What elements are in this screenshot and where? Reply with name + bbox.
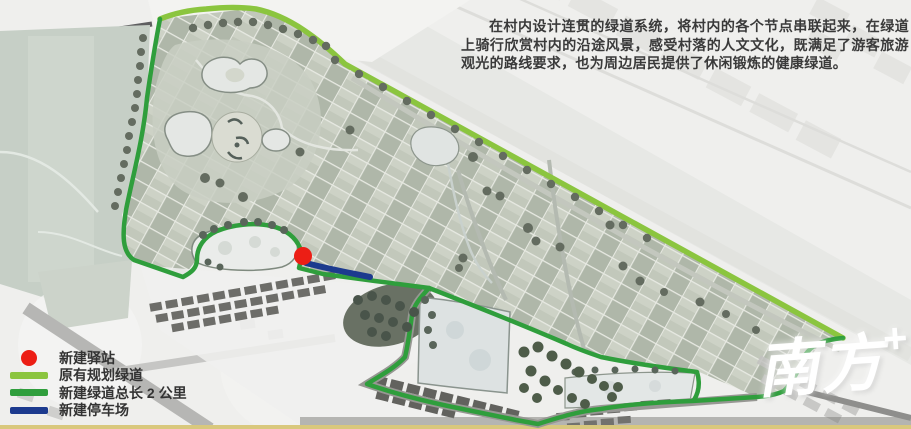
green-line-icon — [10, 389, 48, 396]
greenway-plan-figure: 在村内设计连贯的绿道系统，将村内的各个节点串联起来，在绿道上骑行欣赏村内的沿途风… — [0, 0, 911, 429]
park-pond-east — [262, 129, 290, 151]
legend-label: 新建停车场 — [59, 400, 129, 420]
watermark-text: 南方 — [755, 328, 888, 406]
description-text: 在村内设计连贯的绿道系统，将村内的各个节点串联起来，在绿道上骑行欣赏村内的沿途风… — [461, 17, 909, 73]
nanfang-plus-watermark: 南方+ — [754, 307, 911, 403]
blue-line-icon — [10, 407, 48, 414]
legend-item-station: 新建驿站 — [10, 349, 187, 367]
red-dot-icon — [21, 350, 37, 366]
legend-item-new-greenway: 新建绿道总长 2 公里 — [10, 384, 187, 402]
light-green-line-icon — [10, 372, 48, 379]
legend-item-existing-greenway: 原有规划绿道 — [10, 367, 187, 385]
legend: 新建驿站 原有规划绿道 新建绿道总长 2 公里 新建停车场 — [10, 349, 187, 419]
plus-icon: + — [882, 314, 910, 363]
park-pond-west — [165, 112, 212, 157]
new-station-marker — [294, 247, 312, 265]
legend-item-parking: 新建停车场 — [10, 402, 187, 420]
